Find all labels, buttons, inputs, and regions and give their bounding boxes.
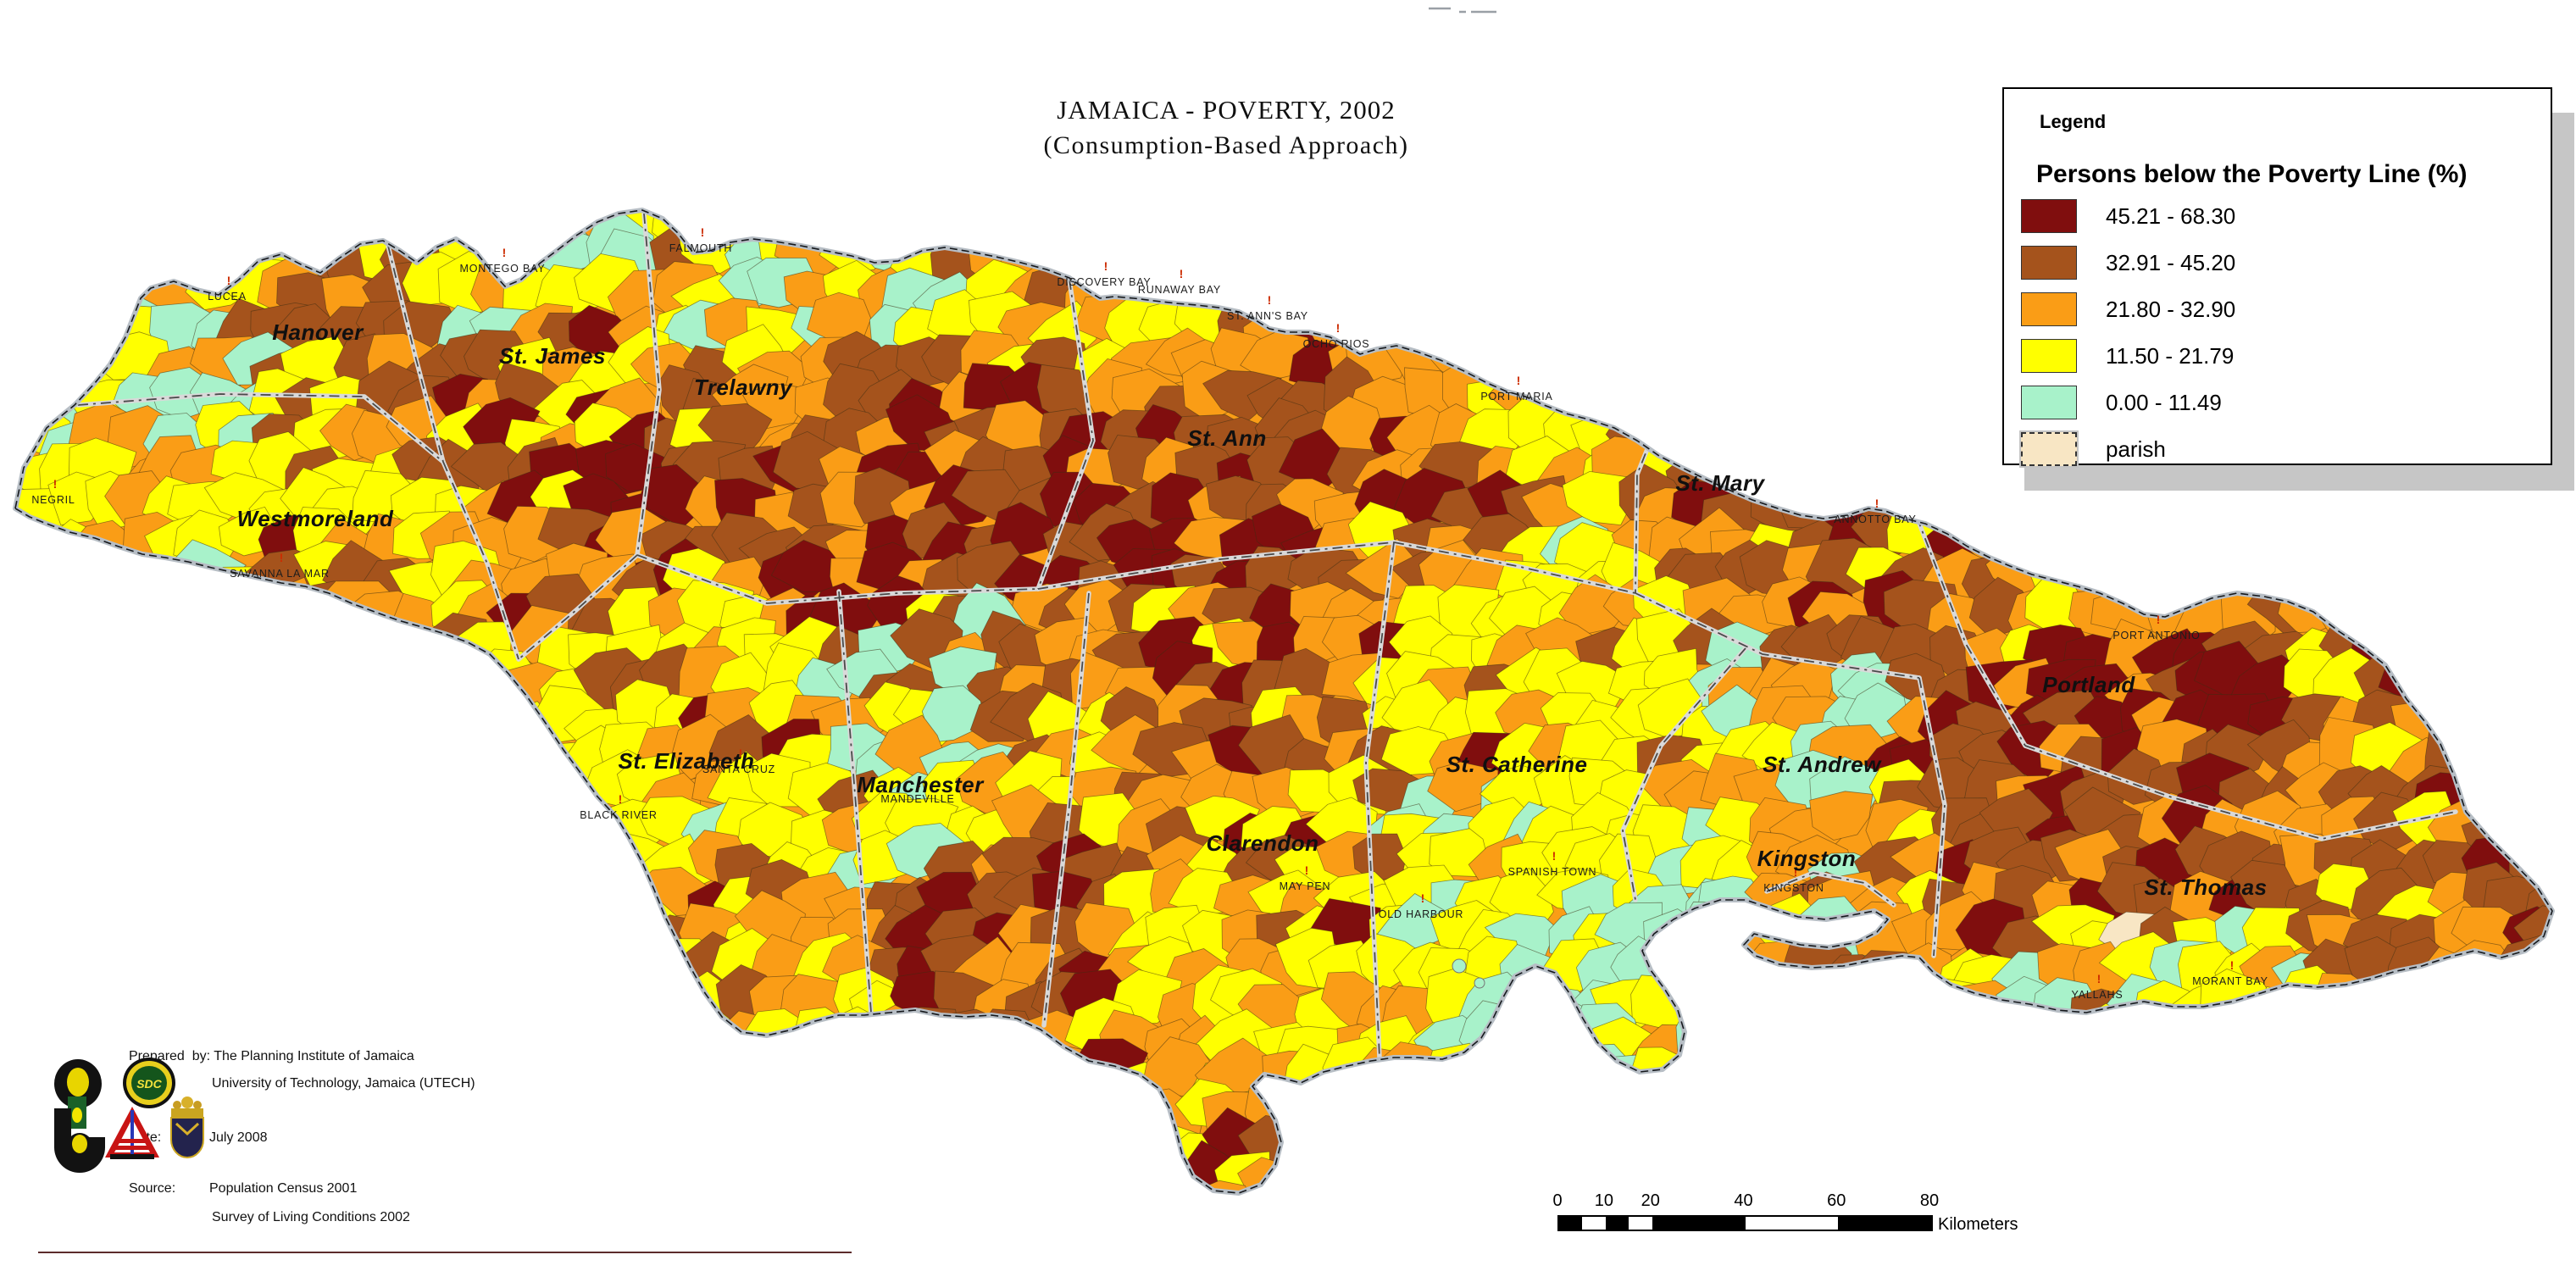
scale-bar: 01020406080 Kilometers bbox=[1557, 1191, 2032, 1234]
town-marker: ! bbox=[227, 274, 231, 287]
university-crest-logo bbox=[171, 1096, 203, 1158]
scale-segment bbox=[1652, 1217, 1746, 1230]
islet bbox=[1452, 959, 1466, 973]
parish-label: St. Thomas bbox=[2144, 874, 2267, 900]
scale-tick-label: 10 bbox=[1595, 1191, 1613, 1211]
town-marker: ! bbox=[1268, 293, 1272, 307]
legend-row: 21.80 - 32.90 bbox=[2021, 292, 2235, 326]
town-label: ANNOTTO BAY bbox=[1834, 514, 1916, 525]
town-label: MORANT BAY bbox=[2192, 975, 2268, 987]
legend-class-label: 11.50 - 21.79 bbox=[2106, 343, 2234, 369]
parish-label: Clarendon bbox=[1206, 830, 1319, 856]
town-marker: ! bbox=[502, 246, 507, 259]
town-marker: ! bbox=[280, 551, 284, 564]
town-label: LUCEA bbox=[208, 291, 247, 303]
islet bbox=[1474, 978, 1485, 988]
town-label: NEGRIL bbox=[31, 494, 75, 506]
scale-tick-label: 40 bbox=[1734, 1191, 1752, 1211]
town-label: ST. ANN'S BAY bbox=[1227, 310, 1308, 322]
town-marker: ! bbox=[701, 225, 705, 239]
town-marker: ! bbox=[1552, 849, 1557, 863]
utech-triangle-logo bbox=[105, 1107, 159, 1159]
scale-tick-label: 80 bbox=[1920, 1191, 1939, 1211]
town-label: KINGSTON bbox=[1763, 882, 1824, 894]
legend-swatch bbox=[2021, 292, 2077, 326]
scale-bar-track bbox=[1557, 1215, 1933, 1231]
map-title: JAMAICA - POVERTY, 2002 (Consumption-Bas… bbox=[1043, 95, 1408, 160]
community-cell bbox=[1631, 975, 1701, 1029]
scale-segment bbox=[1838, 1217, 1931, 1230]
legend-swatch bbox=[2021, 246, 2077, 280]
town-label: MONTEGO BAY bbox=[460, 263, 546, 275]
legend-row: 0.00 - 11.49 bbox=[2021, 386, 2222, 419]
legend-row: 11.50 - 21.79 bbox=[2021, 339, 2234, 373]
legend-row: 32.91 - 45.20 bbox=[2021, 246, 2235, 280]
town-label: SPANISH TOWN bbox=[1508, 866, 1597, 878]
parish-label: St. Andrew bbox=[1763, 752, 1882, 777]
credits-source-value2: Survey of Living Conditions 2002 bbox=[212, 1210, 410, 1225]
map-title-line1: JAMAICA - POVERTY, 2002 bbox=[1043, 95, 1408, 125]
town-marker: ! bbox=[2157, 613, 2161, 626]
town-label: FALMOUTH bbox=[669, 242, 732, 254]
scale-tick-label: 60 bbox=[1827, 1191, 1846, 1211]
sdc-logo-text: SDC bbox=[136, 1077, 162, 1091]
parish-label: Westmoreland bbox=[237, 506, 394, 531]
town-label: DISCOVERY BAY bbox=[1057, 276, 1151, 288]
community-cell bbox=[1594, 376, 1663, 430]
town-marker: ! bbox=[1336, 321, 1341, 335]
town-label: MAY PEN bbox=[1280, 880, 1331, 892]
scale-segment bbox=[1582, 1217, 1605, 1230]
community-cell bbox=[919, 188, 991, 252]
town-label: PORT MARIA bbox=[1480, 391, 1552, 402]
town-marker: ! bbox=[1180, 267, 1184, 280]
town-marker: ! bbox=[1517, 374, 1521, 387]
town-label: SAVANNA LA MAR bbox=[230, 568, 330, 580]
pioj-logo bbox=[54, 1059, 105, 1173]
community-cell bbox=[2347, 978, 2402, 1029]
town-marker: ! bbox=[1875, 497, 1879, 510]
town-marker: ! bbox=[1104, 259, 1108, 273]
town-marker: ! bbox=[2097, 972, 2101, 985]
legend-swatch bbox=[2021, 432, 2077, 466]
town-label: OCHO RIOS bbox=[1303, 338, 1370, 350]
legend-swatch bbox=[2021, 199, 2077, 233]
town-marker: ! bbox=[619, 792, 623, 806]
map-document: { "title": { "line1": "JAMAICA - POVERTY… bbox=[0, 0, 2576, 1288]
legend-panel: Legend Persons below the Poverty Line (%… bbox=[2002, 87, 2552, 465]
parish-label: Portland bbox=[2042, 672, 2135, 697]
legend-class-label: 21.80 - 32.90 bbox=[2106, 297, 2235, 323]
legend-swatch bbox=[2021, 386, 2077, 419]
town-label: YALLAHS bbox=[2072, 989, 2124, 1001]
parish-label: St. James bbox=[499, 343, 606, 369]
legend-class-label: 0.00 - 11.49 bbox=[2106, 390, 2222, 416]
map-edge-artifact bbox=[1429, 8, 1496, 12]
parish-label: St. Catherine bbox=[1446, 752, 1588, 777]
town-label: OLD HARBOUR bbox=[1379, 908, 1463, 920]
legend-class-label: 45.21 - 68.30 bbox=[2106, 203, 2235, 230]
sdc-logo: SDC bbox=[123, 1058, 175, 1108]
community-cell bbox=[126, 560, 200, 614]
legend-subtitle: Persons below the Poverty Line (%) bbox=[2036, 160, 2467, 189]
town-marker: ! bbox=[1421, 891, 1425, 905]
town-marker: ! bbox=[2230, 958, 2235, 972]
town-label: PORT ANTONIO bbox=[2112, 630, 2200, 641]
legend-row: 45.21 - 68.30 bbox=[2021, 199, 2235, 233]
scale-segment bbox=[1559, 1217, 1582, 1230]
parish-label: Trelawny bbox=[694, 375, 793, 400]
town-marker: ! bbox=[53, 477, 58, 491]
parish-label: Kingston bbox=[1757, 846, 1857, 871]
scale-bar-unit: Kilometers bbox=[1938, 1215, 2018, 1235]
town-label: BLACK RIVER bbox=[580, 809, 657, 821]
legend-row: parish bbox=[2021, 432, 2166, 466]
legend-swatch bbox=[2021, 339, 2077, 373]
scale-segment bbox=[1629, 1217, 1652, 1230]
credits-divider-rule bbox=[38, 1252, 852, 1253]
parish-label: St. Mary bbox=[1675, 470, 1765, 496]
community-cell bbox=[2258, 986, 2318, 1041]
town-label: RUNAWAY BAY bbox=[1138, 284, 1221, 296]
legend-header: Legend bbox=[2040, 111, 2106, 133]
parish-label: St. Elizabeth bbox=[618, 748, 754, 774]
scale-tick-label: 20 bbox=[1641, 1191, 1660, 1211]
legend-class-label: 32.91 - 45.20 bbox=[2106, 250, 2235, 276]
town-marker: ! bbox=[1305, 863, 1309, 877]
scale-segment bbox=[1606, 1217, 1629, 1230]
scale-segment bbox=[1746, 1217, 1839, 1230]
parish-label: Hanover bbox=[272, 319, 364, 345]
agency-logos: SDC bbox=[47, 1056, 259, 1200]
map-title-line2: (Consumption-Based Approach) bbox=[1043, 131, 1408, 160]
scale-tick-label: 0 bbox=[1552, 1191, 1562, 1211]
parish-label: St. Ann bbox=[1187, 425, 1267, 451]
legend-class-label: parish bbox=[2106, 436, 2166, 463]
parish-label: Manchester bbox=[857, 772, 985, 797]
